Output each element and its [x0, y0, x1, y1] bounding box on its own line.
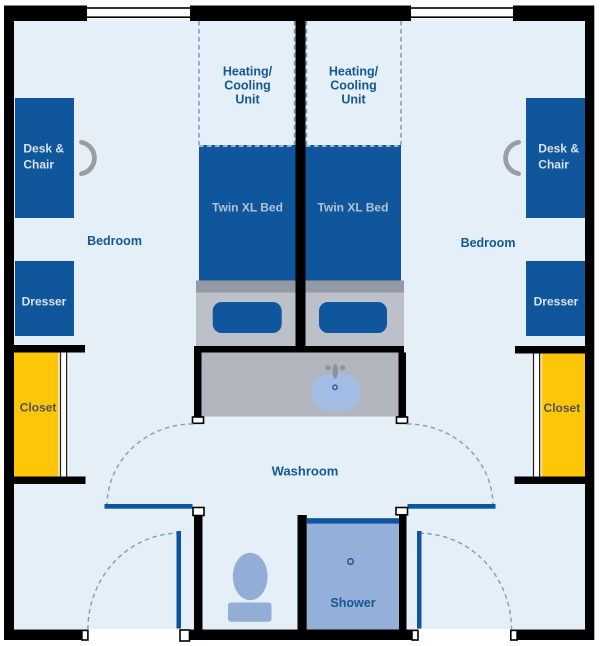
svg-text:Closet: Closet [544, 401, 581, 415]
svg-text:Heating/: Heating/ [329, 64, 379, 78]
svg-text:Unit: Unit [235, 93, 260, 107]
svg-text:Dresser: Dresser [22, 295, 67, 309]
svg-text:Chair: Chair [538, 158, 569, 172]
svg-text:Bedroom: Bedroom [461, 236, 516, 250]
svg-text:Cooling: Cooling [224, 79, 271, 93]
svg-text:Desk &: Desk & [23, 142, 64, 156]
svg-text:Heating/: Heating/ [223, 64, 273, 78]
svg-text:Chair: Chair [23, 158, 54, 172]
svg-text:Twin XL Bed: Twin XL Bed [212, 200, 283, 214]
svg-text:Closet: Closet [20, 400, 57, 414]
svg-text:Washroom: Washroom [272, 464, 339, 479]
svg-text:Desk &: Desk & [538, 142, 579, 156]
svg-text:Twin XL Bed: Twin XL Bed [318, 200, 389, 214]
svg-text:Dresser: Dresser [534, 295, 579, 309]
svg-text:Unit: Unit [341, 93, 366, 107]
svg-text:Shower: Shower [330, 596, 375, 610]
svg-text:Bedroom: Bedroom [87, 234, 142, 248]
svg-text:Cooling: Cooling [330, 79, 377, 93]
